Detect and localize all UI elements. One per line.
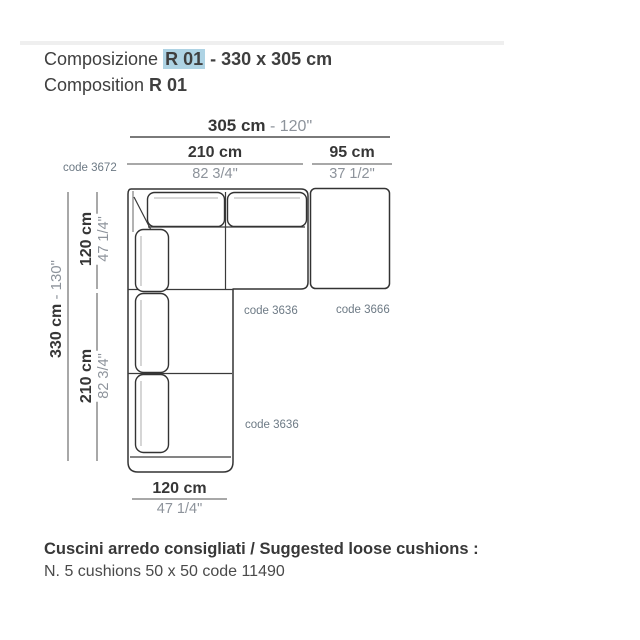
ottoman-element — [311, 189, 390, 289]
cushion-suggestion-detail: N. 5 cushions 50 x 50 code 11490 — [44, 563, 285, 581]
dim-left-seat-in: 82 3/4" — [96, 350, 112, 401]
code-label-top-seat: code 3636 — [244, 305, 298, 317]
side-cushion-1 — [136, 230, 169, 292]
dim-top-depth-cm: 120 cm — [78, 212, 96, 266]
cushion-suggestion-headline: Cuscini arredo consigliati / Suggested l… — [44, 540, 479, 559]
dim-left-seat-cm: 210 cm — [78, 349, 96, 403]
dim-total-depth: 330 cm - 130" — [48, 260, 66, 358]
code-label-ottoman: code 3666 — [336, 304, 390, 316]
dim-total-width-in: - 120" — [266, 118, 313, 135]
dim-total-depth-in: - 130" — [48, 260, 65, 304]
dim-total-width: 305 cm - 120" — [130, 116, 390, 136]
code-label-corner: code 3672 — [63, 162, 117, 174]
dim-ottoman-width-cm: 95 cm — [312, 144, 392, 162]
dim-bottom-width-in: 47 1/4" — [132, 501, 227, 517]
code-label-left-seat: code 3636 — [245, 419, 299, 431]
dim-total-width-cm: 305 cm — [208, 116, 266, 135]
catalog-page: { "header": { "title_prefix": "Composizi… — [0, 0, 640, 640]
dim-total-depth-cm: 330 cm — [48, 304, 65, 358]
dim-seat-width-in: 82 3/4" — [127, 166, 303, 182]
dim-seat-width-cm: 210 cm — [127, 144, 303, 162]
side-cushion-2 — [136, 294, 169, 373]
dim-bottom-width-cm: 120 cm — [132, 480, 227, 498]
dim-top-depth-in: 47 1/4" — [96, 213, 112, 264]
dim-ottoman-width-in: 37 1/2" — [312, 166, 392, 182]
side-cushion-3 — [136, 375, 169, 453]
